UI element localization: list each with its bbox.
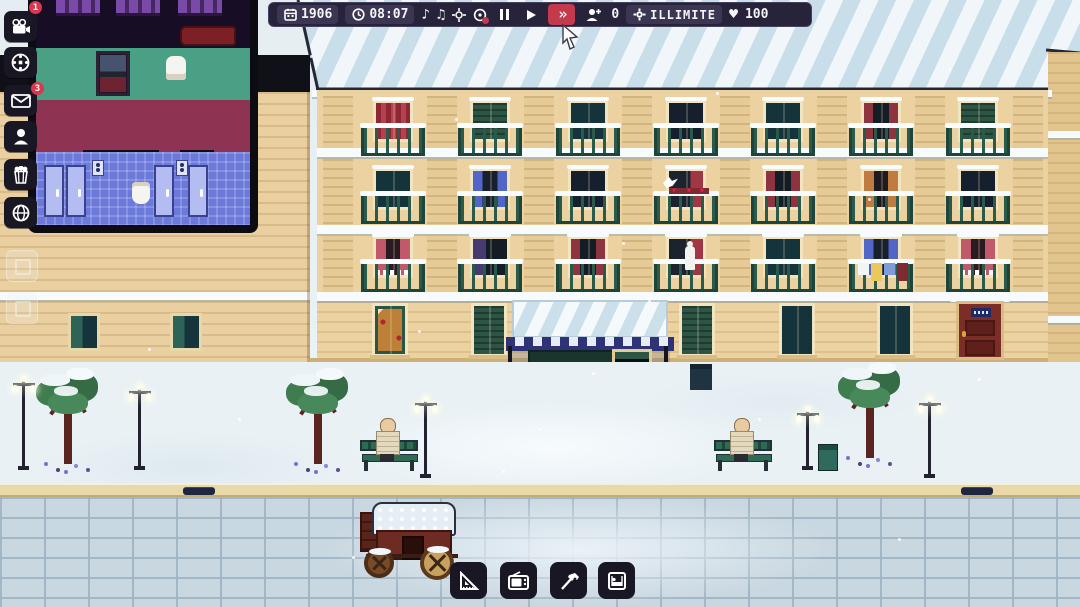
lamp-base	[420, 474, 431, 478]
bottom-toolbar	[0, 560, 1080, 604]
tree-snow	[66, 368, 94, 380]
mouse-cursor	[560, 24, 582, 50]
snowflake	[418, 330, 421, 333]
snowy-tree	[34, 364, 102, 476]
lamp-globe	[414, 405, 420, 413]
clock-icon	[351, 8, 365, 22]
lamp-base	[802, 466, 813, 470]
snowy-tree	[284, 364, 352, 476]
fast-forward-button[interactable]: »	[548, 4, 575, 25]
snowflake	[455, 118, 458, 121]
gear-coin-icon	[632, 8, 646, 22]
lamp-base	[924, 474, 935, 478]
bed-room-icon	[607, 571, 627, 591]
movie-camera-icon	[11, 19, 31, 35]
storm-drain	[961, 487, 993, 495]
mail-badge: 3	[31, 82, 44, 95]
lamp-post	[928, 400, 931, 478]
lamp-top-light	[137, 384, 143, 390]
fallen-petals	[866, 464, 870, 468]
lamp-top-light	[927, 396, 933, 402]
snowflake	[716, 92, 719, 95]
lamp-post	[138, 388, 141, 470]
street-lamp	[128, 384, 152, 470]
street-lamp	[796, 406, 820, 470]
rooms-button[interactable]	[598, 562, 635, 599]
snowflake	[502, 470, 505, 473]
center-view-icon[interactable]	[452, 8, 466, 22]
measure-tool-button[interactable]	[450, 562, 487, 599]
snowflake	[948, 68, 951, 71]
date-display: 1906	[277, 5, 338, 24]
fallen-petals	[314, 470, 318, 474]
hearts-count: 100	[745, 7, 768, 22]
zoom-toggle-icon[interactable]	[473, 8, 487, 22]
fallen-petals	[44, 462, 48, 466]
time-value: 08:07	[369, 7, 408, 22]
fallen-petals	[876, 458, 880, 462]
date-value: 1906	[301, 7, 332, 22]
fallen-petals	[74, 464, 78, 468]
tree-trunk	[866, 400, 874, 458]
person-plus-icon	[582, 8, 604, 22]
person-icon	[13, 128, 29, 145]
props-layer	[0, 0, 1080, 607]
calendar-icon	[283, 8, 297, 22]
snowflake	[538, 428, 541, 431]
time-display: 08:07	[345, 5, 414, 24]
sitting-person-coat	[730, 431, 754, 455]
money-value: ILLIMITE	[650, 8, 716, 22]
street-lamp	[12, 376, 36, 470]
film-reel-icon	[11, 53, 30, 72]
trash-bin	[818, 444, 838, 471]
street-lamp	[918, 396, 942, 478]
lamp-post	[424, 400, 427, 478]
faded-tool-button[interactable]	[6, 292, 38, 324]
top-hud-bar: 1906 08:07 ♪ ♫ » 0 ILLIMITE ♥	[268, 2, 812, 27]
fallen-petals	[294, 462, 298, 466]
left-sidebar: 1 3	[0, 0, 48, 240]
build-tool-button[interactable]	[550, 562, 587, 599]
fallen-petals	[306, 468, 310, 472]
snowflake	[648, 300, 651, 303]
snowflake	[592, 372, 595, 375]
tree-snow	[856, 380, 880, 390]
lamp-base	[18, 466, 29, 470]
hammer-tools-icon	[558, 571, 580, 591]
lamp-base	[134, 466, 145, 470]
snowflake	[310, 55, 313, 58]
snowflake	[868, 198, 871, 201]
tree-snow	[868, 362, 896, 374]
fallen-petals	[858, 462, 862, 466]
screening-button[interactable]	[500, 562, 537, 599]
lamp-globe	[12, 385, 18, 393]
snowflake	[978, 378, 981, 381]
tree-snow	[316, 368, 344, 380]
fallen-petals	[888, 462, 892, 466]
snowflake	[622, 242, 625, 245]
heart-icon: ♥	[729, 7, 738, 22]
lamp-globe	[814, 415, 820, 423]
snowflake	[238, 418, 241, 421]
camera-badge: 1	[29, 1, 42, 14]
tree-snow	[304, 386, 328, 396]
music-notes-icon[interactable]: ♫	[437, 8, 445, 22]
storm-drain	[183, 487, 215, 495]
fallen-petals	[64, 470, 68, 474]
lamp-globe	[936, 405, 942, 413]
sitting-person-legs	[734, 454, 748, 461]
snowy-tree	[836, 358, 904, 470]
game-screen: 1906 08:07 ♪ ♫ » 0 ILLIMITE ♥	[0, 0, 1080, 607]
snowflake	[352, 556, 355, 559]
pause-button[interactable]	[494, 5, 514, 24]
person-button[interactable]	[4, 121, 37, 152]
fallen-petals	[86, 468, 90, 472]
fallen-petals	[56, 468, 60, 472]
fallen-petals	[324, 464, 328, 468]
fallen-petals	[846, 456, 850, 460]
set-square-icon	[458, 571, 480, 591]
play-button[interactable]	[521, 5, 541, 24]
mail-icon	[11, 94, 31, 108]
music-note-icon[interactable]: ♪	[421, 8, 429, 22]
fallen-petals	[336, 468, 340, 472]
lamp-globe	[30, 385, 36, 393]
park-bench	[360, 434, 418, 472]
lamp-post	[22, 380, 25, 470]
lamp-top-light	[423, 396, 429, 402]
retro-tv-icon	[507, 571, 531, 591]
tree-trunk	[64, 406, 72, 464]
lamp-top-light	[805, 406, 811, 412]
lamp-globe	[146, 393, 152, 401]
faded-tool-button[interactable]	[6, 250, 38, 282]
popcorn-icon	[13, 166, 29, 184]
population-count: 0	[611, 7, 619, 22]
snowflake	[898, 538, 901, 541]
tree-trunk	[314, 406, 322, 464]
snowflake	[148, 348, 151, 351]
movie-camera-button[interactable]	[4, 11, 37, 42]
lamp-globe	[432, 405, 438, 413]
film-reel-button[interactable]	[4, 47, 37, 78]
lamp-globe	[128, 393, 134, 401]
snowflake	[758, 418, 761, 421]
sitting-person-legs	[380, 454, 394, 461]
lamp-globe	[796, 415, 802, 423]
lamp-post	[806, 410, 809, 470]
lamp-globe	[918, 405, 924, 413]
globe-icon	[12, 204, 30, 222]
trash-bin	[690, 364, 712, 390]
notification-dot	[482, 17, 489, 24]
popcorn-button[interactable]	[4, 159, 37, 190]
globe-button[interactable]	[4, 197, 37, 228]
lamp-top-light	[21, 376, 27, 382]
tree-snow	[54, 386, 78, 396]
park-bench	[714, 434, 772, 472]
snowflake	[562, 148, 565, 151]
money-display: ILLIMITE	[626, 5, 722, 24]
sitting-person-coat	[376, 431, 400, 455]
